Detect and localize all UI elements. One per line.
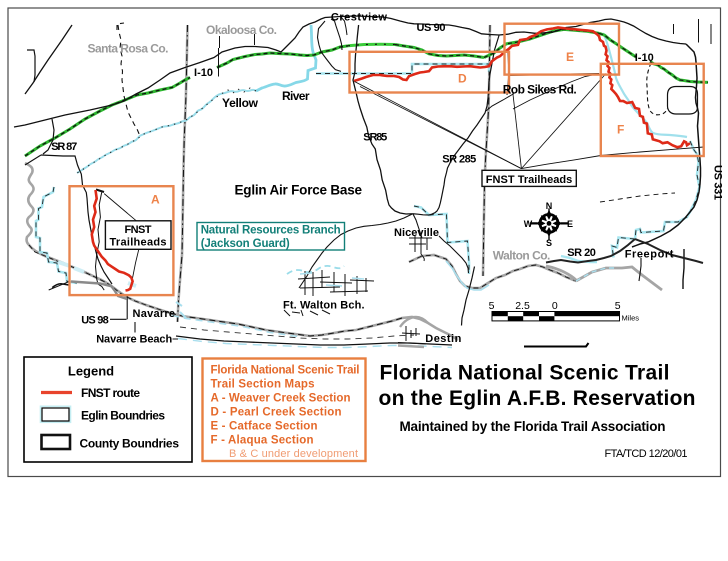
svg-text:W: W — [524, 219, 533, 229]
svg-text:FTA/TCD 12/20/01: FTA/TCD 12/20/01 — [605, 448, 688, 460]
svg-text:Navarre Beach: Navarre Beach — [96, 334, 172, 346]
svg-text:Walton Co.: Walton Co. — [493, 249, 551, 263]
svg-text:Trailheads: Trailheads — [110, 237, 167, 249]
svg-text:US 331: US 331 — [712, 165, 724, 200]
svg-text:0: 0 — [552, 300, 558, 312]
svg-text:Ft. Walton Bch.: Ft. Walton Bch. — [283, 300, 365, 312]
svg-text:US 90: US 90 — [417, 22, 446, 34]
svg-text:SR 285: SR 285 — [442, 154, 476, 166]
svg-text:Santa Rosa Co.: Santa Rosa Co. — [88, 42, 169, 56]
svg-text:FNST route: FNST route — [81, 386, 140, 400]
svg-text:I-10: I-10 — [194, 67, 213, 79]
svg-text:Trail Section Maps: Trail Section Maps — [211, 379, 315, 391]
svg-text:County Boundries: County Boundries — [80, 437, 180, 451]
svg-text:E - Catface Section: E - Catface Section — [211, 421, 318, 433]
svg-text:Freeport: Freeport — [625, 249, 674, 261]
svg-text:Niceville: Niceville — [394, 227, 439, 239]
svg-text:SR 87: SR 87 — [51, 141, 77, 153]
svg-text:Florida National Scenic Trail: Florida National Scenic Trail — [380, 362, 670, 385]
svg-text:Navarre: Navarre — [133, 308, 176, 320]
svg-text:5: 5 — [489, 300, 495, 312]
svg-text:River: River — [282, 89, 310, 103]
svg-text:Crestview: Crestview — [331, 12, 387, 24]
svg-text:E: E — [566, 50, 574, 64]
svg-text:2.5: 2.5 — [515, 300, 530, 312]
svg-text:B & C under development: B & C under development — [229, 448, 358, 460]
svg-text:N: N — [546, 201, 553, 211]
svg-text:FNST: FNST — [125, 224, 152, 236]
svg-text:F - Alaqua Section: F - Alaqua Section — [211, 435, 314, 447]
svg-text:(Jackson Guard): (Jackson Guard) — [201, 238, 290, 250]
svg-text:Maintained by the Florida Trai: Maintained by the Florida Trail Associat… — [400, 419, 666, 434]
svg-text:A - Weaver Creek Section: A - Weaver Creek Section — [211, 393, 351, 405]
svg-text:D: D — [458, 72, 467, 86]
svg-text:Yellow: Yellow — [222, 96, 259, 110]
svg-text:Eglin Air Force Base: Eglin Air Force Base — [235, 183, 363, 198]
svg-text:5: 5 — [615, 300, 621, 312]
svg-text:Destin: Destin — [425, 333, 461, 345]
svg-text:SR85: SR85 — [363, 132, 387, 144]
svg-text:Natural Resources Branch: Natural Resources Branch — [201, 225, 341, 237]
svg-text:D - Pearl Creek Section: D - Pearl Creek Section — [211, 407, 342, 419]
svg-text:Eglin Boundries: Eglin Boundries — [81, 409, 165, 423]
svg-text:A: A — [151, 193, 160, 207]
svg-text:I-10: I-10 — [635, 52, 654, 64]
svg-text:US 98: US 98 — [81, 315, 109, 327]
svg-text:S: S — [546, 238, 552, 248]
svg-text:on the Eglin A.F.B. Reservatio: on the Eglin A.F.B. Reservation — [379, 387, 696, 410]
svg-text:SR 20: SR 20 — [567, 247, 596, 259]
svg-text:F: F — [617, 123, 624, 137]
svg-text:FNST Trailheads: FNST Trailheads — [486, 174, 573, 186]
svg-text:Miles: Miles — [622, 314, 640, 323]
svg-text:Okaloosa Co.: Okaloosa Co. — [206, 23, 277, 37]
svg-text:Legend: Legend — [68, 364, 114, 379]
svg-text:Florida National Scenic Trail: Florida National Scenic Trail — [211, 365, 360, 377]
svg-text:Rob Sikes Rd.: Rob Sikes Rd. — [503, 83, 577, 97]
svg-text:E: E — [567, 219, 573, 229]
